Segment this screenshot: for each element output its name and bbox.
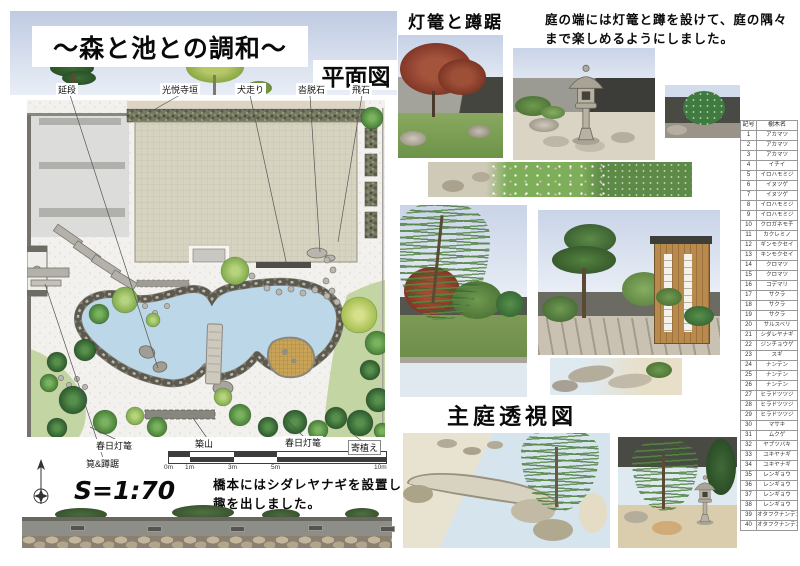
label-tobiishi: 飛石 — [350, 83, 372, 96]
plant-symbol: 24 — [741, 361, 757, 371]
label-kutsunugi-ishi: 沓脱石 — [296, 83, 327, 96]
plant-name: ヒラドツツジ — [757, 401, 798, 411]
plant-name: サクラ — [757, 291, 798, 301]
plan-right-fence — [365, 128, 377, 238]
plant-symbol: 15 — [741, 271, 757, 281]
plant-symbol: 8 — [741, 201, 757, 211]
plant-table-row: 23スギ — [741, 351, 798, 361]
plant-table-row: 29ヒラドツツジ — [741, 411, 798, 421]
garden-design-board: 〜森と池との調和〜 平面図 延段 光悦寺垣 犬走り 沓脱石 飛石 — [0, 0, 800, 566]
label-yoriue: 寄植え — [348, 440, 381, 455]
plant-symbol: 27 — [741, 391, 757, 401]
photo-pine-tower — [538, 210, 720, 355]
plant-table-row: 18サクラ — [741, 301, 798, 311]
plant-symbol: 4 — [741, 161, 757, 171]
plant-symbol: 38 — [741, 501, 757, 511]
plant-name: アカマツ — [757, 131, 798, 141]
plant-name: ナンテン — [757, 381, 798, 391]
plant-name: レンギョウ — [757, 481, 798, 491]
plant-name: サルスベリ — [757, 321, 798, 331]
plant-name: スギ — [757, 351, 798, 361]
plant-symbol: 33 — [741, 451, 757, 461]
label-tsukiyama: 築山 — [193, 437, 215, 450]
plant-symbol: 32 — [741, 441, 757, 451]
plant-table-row: 35レンギョウ — [741, 471, 798, 481]
plan-parking-area — [31, 115, 129, 237]
plant-table-row: 12ギンモクセイ — [741, 241, 798, 251]
plant-symbol: 40 — [741, 521, 757, 531]
plant-table-row: 11カクレミノ — [741, 231, 798, 241]
label-nobedan: 延段 — [56, 83, 78, 96]
label-koetsuji-fence: 光悦寺垣 — [160, 83, 200, 96]
plant-name: イロハモミジ — [757, 211, 798, 221]
plant-table-row: 30マサキ — [741, 421, 798, 431]
plant-symbol: 20 — [741, 321, 757, 331]
scalebar-0m: 0m — [164, 464, 173, 471]
label-kakei-tsukubai: 筧&蹲踞 — [84, 457, 121, 470]
plant-symbol: 25 — [741, 371, 757, 381]
plant-name: クロマツ — [757, 261, 798, 271]
plant-name: ナンテン — [757, 371, 798, 381]
photo-groundcover-banner — [428, 162, 692, 197]
board-title-box: 〜森と池との調和〜 — [32, 26, 308, 67]
plant-symbol: 16 — [741, 281, 757, 291]
scalebar-1m: 1m — [185, 464, 194, 471]
plant-name: キンモクセイ — [757, 251, 798, 261]
plant-name: イチイ — [757, 161, 798, 171]
label-kasuga-lantern-left: 春日灯篭 — [94, 439, 134, 452]
plant-table-row: 7イヌツゲ — [741, 191, 798, 201]
elevation-stone-base — [22, 536, 392, 548]
plant-symbol: 34 — [741, 461, 757, 471]
plant-table-row: 26ナンテン — [741, 381, 798, 391]
plant-symbol: 21 — [741, 331, 757, 341]
plant-symbol: 7 — [741, 191, 757, 201]
plant-table-header: 記号 樹木名 — [741, 121, 798, 131]
plant-name: ヒラドツツジ — [757, 411, 798, 421]
plant-symbol: 31 — [741, 431, 757, 441]
plant-name: アカマツ — [757, 141, 798, 151]
plant-symbol: 9 — [741, 211, 757, 221]
label-kasuga-lantern-right: 春日灯篭 — [283, 436, 323, 449]
plant-symbol: 19 — [741, 311, 757, 321]
photo-stone-bridge — [403, 433, 610, 548]
plant-table-row: 9イロハモミジ — [741, 211, 798, 221]
plant-symbol: 6 — [741, 181, 757, 191]
plant-table-row: 40オタフクナンテン — [741, 521, 798, 531]
plant-table-row: 13キンモクセイ — [741, 251, 798, 261]
plant-table-row: 6イヌツゲ — [741, 181, 798, 191]
plant-table-row: 37レンギョウ — [741, 491, 798, 501]
plant-table-row: 14クロマツ — [741, 261, 798, 271]
plant-table-row: 17サクラ — [741, 291, 798, 301]
plant-name: イヌツゲ — [757, 191, 798, 201]
plant-table-row: 21シダレヤナギ — [741, 331, 798, 341]
plant-symbol: 37 — [741, 491, 757, 501]
plant-table-row: 32ヤブツバキ — [741, 441, 798, 451]
plant-symbol: 1 — [741, 131, 757, 141]
plant-name: レンギョウ — [757, 471, 798, 481]
plant-table-row: 4イチイ — [741, 161, 798, 171]
plant-symbol: 35 — [741, 471, 757, 481]
plant-name: マサキ — [757, 421, 798, 431]
plan-terrace — [256, 262, 311, 268]
plant-table-row: 25ナンテン — [741, 371, 798, 381]
plant-name: レンギョウ — [757, 501, 798, 511]
plant-name: クロマツ — [757, 271, 798, 281]
plant-table-row: 10クロガネモチ — [741, 221, 798, 231]
plant-name: ユキヤナギ — [757, 461, 798, 471]
plant-name: イロハモミジ — [757, 171, 798, 181]
plant-table-row: 19サクラ — [741, 311, 798, 321]
plant-name: ムクゲ — [757, 431, 798, 441]
lantern-icon-small — [692, 471, 718, 527]
plant-name: サクラ — [757, 311, 798, 321]
plant-name: カクレミノ — [757, 231, 798, 241]
plant-name: レンギョウ — [757, 491, 798, 501]
plant-symbol: 2 — [741, 141, 757, 151]
plant-table-row: 24ナンテン — [741, 361, 798, 371]
scalebar-5m: 5m — [271, 464, 280, 471]
plan-island — [268, 338, 314, 378]
photo-willow-maple — [400, 205, 527, 397]
plant-table: 記号 樹木名 1アカマツ2アカマツ3アカマツ4イチイ5イロハモミジ6イヌツゲ7イ… — [740, 120, 798, 531]
plant-symbol: 17 — [741, 291, 757, 301]
plant-symbol: 36 — [741, 481, 757, 491]
site-plan — [27, 100, 385, 437]
plant-symbol: 28 — [741, 401, 757, 411]
plant-table-row: 16コデマリ — [741, 281, 798, 291]
photo-wall-bush — [665, 85, 740, 138]
plant-symbol: 12 — [741, 241, 757, 251]
lantern-caption: 庭の端には灯篭と蹲を設けて、庭の隅々 まで楽しめるようにしました。 — [545, 10, 787, 48]
plant-name: オタフクナンテン — [757, 511, 798, 521]
plant-symbol: 22 — [741, 341, 757, 351]
plant-table-row: 38レンギョウ — [741, 501, 798, 511]
bridge-caption: 橋本にはシダレヤナギを設置し 趣を出しました。 — [213, 475, 402, 513]
plant-name: ヤブツバキ — [757, 441, 798, 451]
plant-table-row: 33ユキヤナギ — [741, 451, 798, 461]
plant-symbol: 5 — [741, 171, 757, 181]
scalebar-3m: 3m — [228, 464, 237, 471]
plant-name: ヒラドツツジ — [757, 391, 798, 401]
plant-table-row: 5イロハモミジ — [741, 171, 798, 181]
compass-icon — [28, 458, 54, 508]
plant-symbol: 23 — [741, 351, 757, 361]
plant-name: イロハモミジ — [757, 201, 798, 211]
lantern-icon — [565, 58, 607, 148]
plant-symbol: 29 — [741, 411, 757, 421]
plan-stone-bridge — [205, 324, 222, 384]
plant-table-row: 2アカマツ — [741, 141, 798, 151]
plant-symbol: 26 — [741, 381, 757, 391]
scalebar-10m: 10m — [374, 464, 387, 471]
plant-table-row: 20サルスベリ — [741, 321, 798, 331]
photo-maple-corner — [398, 35, 503, 158]
plant-name: ナンテン — [757, 361, 798, 371]
plant-symbol: 14 — [741, 261, 757, 271]
plant-name: サクラ — [757, 301, 798, 311]
plant-table-row: 28ヒラドツツジ — [741, 401, 798, 411]
scale-text: S=1:70 — [74, 476, 175, 505]
photo-lantern-pond — [618, 437, 737, 548]
plant-symbol: 10 — [741, 221, 757, 231]
plant-table-row: 1アカマツ — [741, 131, 798, 141]
plant-table-row: 15クロマツ — [741, 271, 798, 281]
plant-name: クロガネモチ — [757, 221, 798, 231]
plant-symbol: 30 — [741, 421, 757, 431]
plant-name: ユキヤナギ — [757, 451, 798, 461]
plant-table-row: 8イロハモミジ — [741, 201, 798, 211]
plant-name: コデマリ — [757, 281, 798, 291]
plant-symbol: 18 — [741, 301, 757, 311]
plant-name: イヌツゲ — [757, 181, 798, 191]
photo-pond-edge — [550, 358, 682, 395]
plant-name: ジンチョウゲ — [757, 341, 798, 351]
plant-table-row: 34ユキヤナギ — [741, 461, 798, 471]
lantern-section-title: 灯篭と蹲踞 — [408, 8, 503, 33]
board-title: 〜森と池との調和〜 — [53, 29, 287, 65]
plant-table-row: 36レンギョウ — [741, 481, 798, 491]
plant-symbol: 13 — [741, 251, 757, 261]
plant-name: アカマツ — [757, 151, 798, 161]
plant-table-row: 3アカマツ — [741, 151, 798, 161]
perspective-section-title: 主庭透視図 — [447, 399, 577, 431]
plant-table-row: 31ムクゲ — [741, 431, 798, 441]
plant-table-row: 27ヒラドツツジ — [741, 391, 798, 401]
plant-table-body: 1アカマツ2アカマツ3アカマツ4イチイ5イロハモミジ6イヌツゲ7イヌツゲ8イロハ… — [741, 131, 798, 531]
photo-stone-lantern — [513, 48, 655, 160]
plant-name: オタフクナンテン — [757, 521, 798, 531]
plant-symbol: 3 — [741, 151, 757, 161]
plant-symbol: 11 — [741, 231, 757, 241]
plan-koetsuji-fence — [127, 109, 365, 122]
plant-name: ギンモクセイ — [757, 241, 798, 251]
label-inubashiri: 犬走り — [235, 83, 266, 96]
plant-symbol: 39 — [741, 511, 757, 521]
plan-building — [135, 122, 357, 264]
plant-name: シダレヤナギ — [757, 331, 798, 341]
plant-table-row: 22ジンチョウゲ — [741, 341, 798, 351]
plant-table-row: 39オタフクナンテン — [741, 511, 798, 521]
